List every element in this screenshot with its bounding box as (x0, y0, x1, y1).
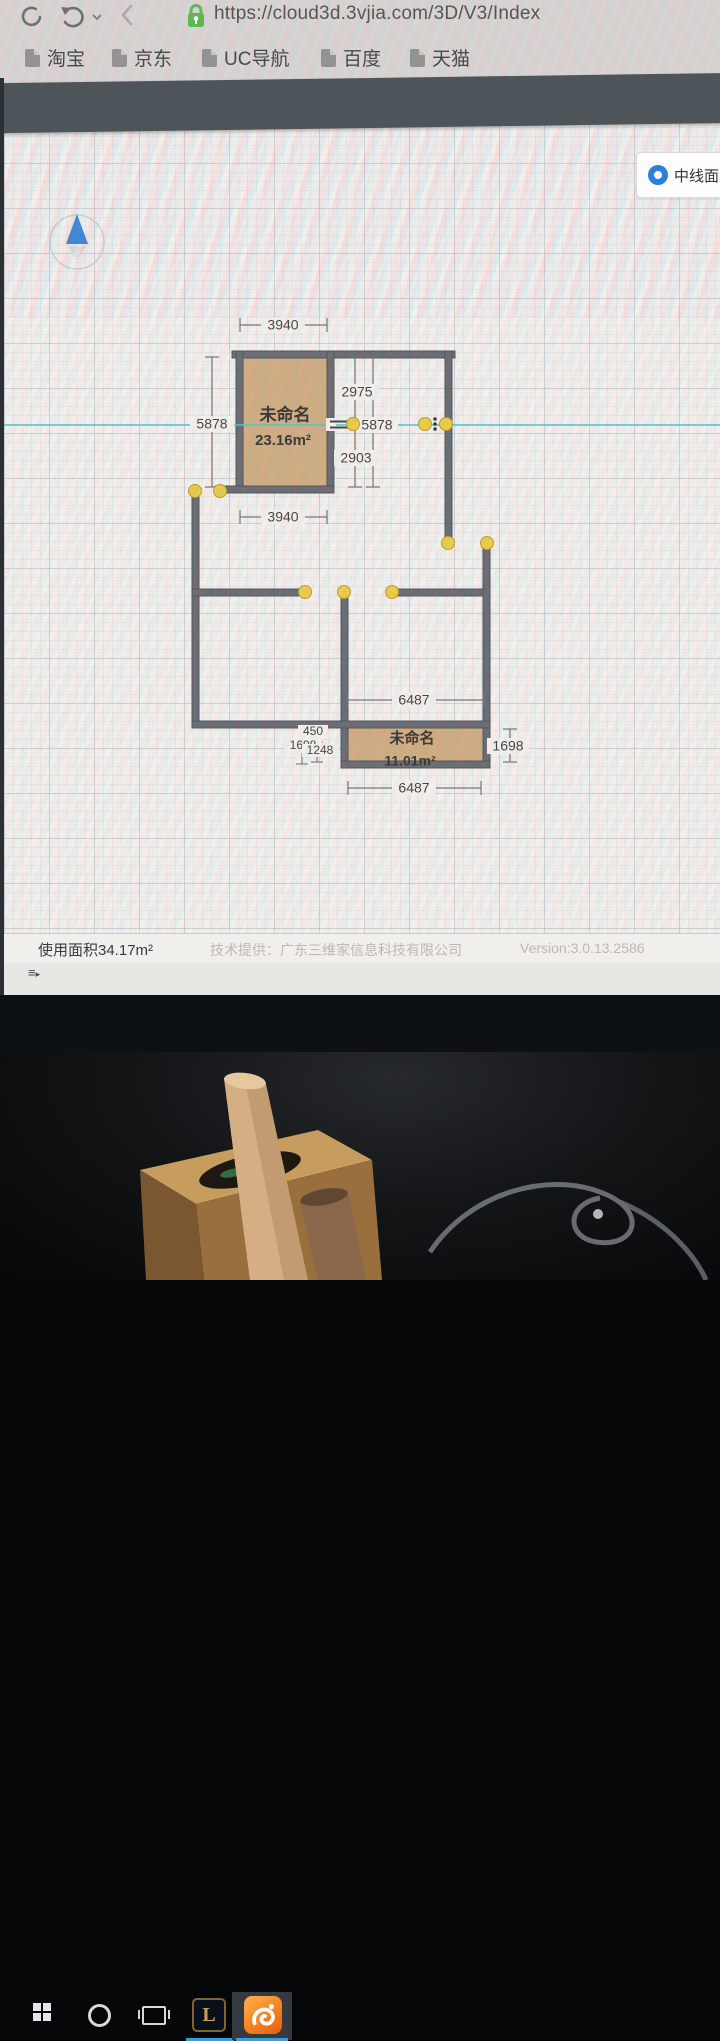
bottom-strip: ≡▸ (4, 963, 720, 995)
windows-start-icon[interactable] (33, 2003, 51, 2021)
status-bar: 使用面积34.17m² 技术提供：广东三维家信息科技有限公司 Version:3… (4, 933, 720, 964)
vertex-handle[interactable] (440, 418, 453, 431)
walls[interactable] (192, 351, 490, 768)
cable (620, 1202, 706, 1280)
dim-label[interactable]: 3940 (267, 509, 298, 525)
room-top-area: 23.16m² (255, 432, 311, 449)
used-area-text: 使用面积34.17m² (38, 939, 153, 960)
view-mode-panel: 中线面 (636, 152, 720, 198)
radio-label: 中线面 (674, 165, 719, 186)
room-bottom-area: 11.01m² (384, 753, 436, 769)
monitor-screen: https://cloud3d.3vjia.com/3D/V3/Index 淘宝… (0, 0, 720, 1052)
vertex-handle[interactable] (347, 418, 360, 431)
version-text: Version:3.0.13.2586 (520, 940, 645, 956)
wall-dots-icon[interactable] (433, 417, 437, 431)
vertex-handle[interactable] (442, 537, 455, 550)
screen-edge (0, 78, 4, 995)
uc-browser-icon[interactable] (244, 1996, 282, 2034)
vertex-handle[interactable] (419, 418, 432, 431)
cable-connector (593, 1209, 603, 1219)
dim-label[interactable]: 3940 (267, 317, 298, 333)
dim-label[interactable]: 2975 (341, 384, 372, 400)
dim-label[interactable]: 6487 (398, 780, 429, 796)
north-arrow-icon (50, 214, 104, 269)
floorplan-drawing[interactable]: 3940 5878 2975 2903 5878 3940 6487 (0, 0, 720, 933)
provider-text: 技术提供：广东三维家信息科技有限公司 (210, 940, 462, 960)
windows-taskbar: L (0, 995, 720, 1052)
vertex-handle[interactable] (481, 537, 494, 550)
desk-objects (0, 1052, 720, 1280)
vertex-handle[interactable] (338, 586, 351, 599)
status-menu-icon[interactable]: ≡▸ (28, 969, 48, 985)
vertex-handle[interactable] (386, 586, 399, 599)
league-of-legends-icon[interactable]: L (192, 1998, 226, 2032)
page-header-bar (0, 73, 720, 134)
cortana-icon[interactable] (88, 2004, 111, 2027)
radio-selected-icon[interactable] (648, 165, 668, 185)
dim-label[interactable]: 5878 (361, 417, 392, 433)
dim-label[interactable]: 6487 (398, 692, 429, 708)
dim-label[interactable]: 1248 (307, 743, 334, 757)
task-view-icon[interactable] (142, 2006, 166, 2025)
dim-label[interactable]: 450 (303, 724, 323, 738)
vertex-handle[interactable] (189, 485, 202, 498)
desk-area (0, 1052, 720, 1280)
dim-label[interactable]: 2903 (340, 450, 371, 466)
cable (430, 1184, 632, 1252)
room-bottom-name[interactable]: 未命名 (388, 729, 434, 747)
vertex-handle[interactable] (214, 485, 227, 498)
dim-label[interactable]: 1698 (492, 738, 523, 754)
room-top-name[interactable]: 未命名 (259, 404, 311, 424)
vertex-handle[interactable] (299, 586, 312, 599)
dim-label[interactable]: 5878 (196, 416, 227, 432)
squirrel-glyph (244, 1996, 282, 2034)
